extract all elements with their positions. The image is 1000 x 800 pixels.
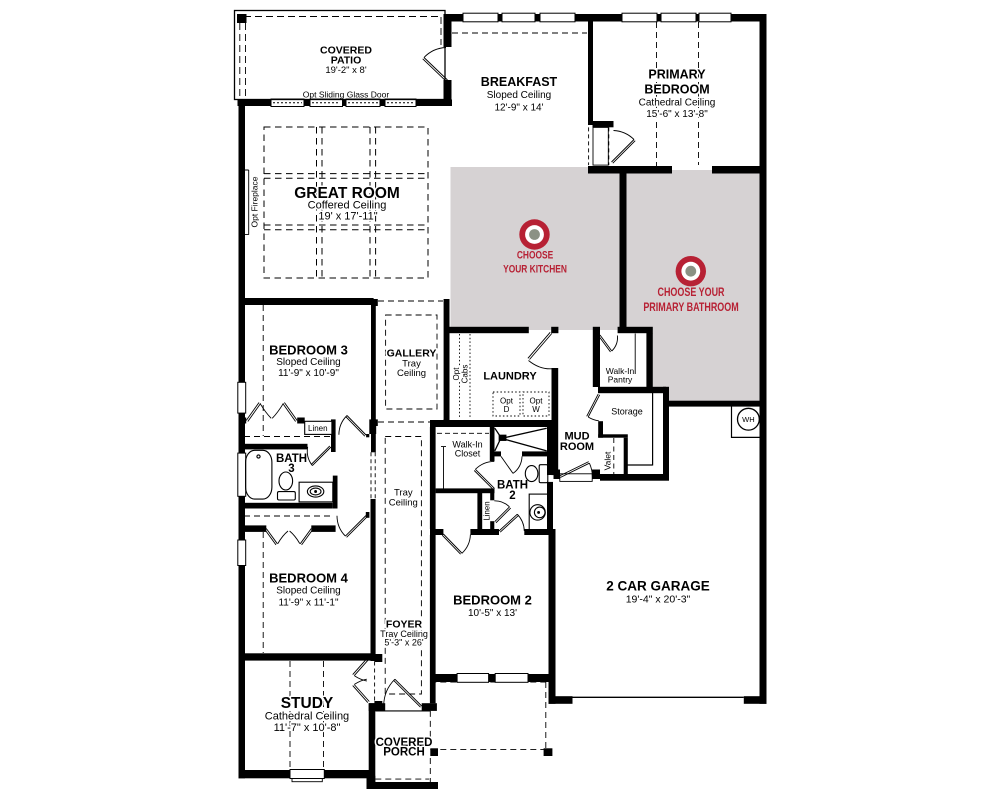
svg-text:Sloped Ceiling: Sloped Ceiling (276, 586, 341, 597)
svg-text:Valet: Valet (603, 451, 613, 470)
svg-text:19'-4" x 20'-3": 19'-4" x 20'-3" (626, 594, 691, 606)
svg-text:Sloped Ceiling: Sloped Ceiling (487, 90, 552, 101)
svg-text:YOUR KITCHEN: YOUR KITCHEN (503, 264, 567, 277)
svg-text:Cathedral Ceiling: Cathedral Ceiling (265, 711, 349, 723)
svg-text:Sloped Ceiling: Sloped Ceiling (276, 357, 341, 368)
svg-text:STUDY: STUDY (281, 695, 334, 712)
svg-text:BEDROOM: BEDROOM (644, 83, 709, 97)
svg-text:Opt Sliding Glass Door: Opt Sliding Glass Door (303, 90, 390, 100)
svg-text:PORCH: PORCH (383, 747, 425, 759)
svg-text:BEDROOM 3: BEDROOM 3 (269, 343, 348, 358)
svg-text:Cabs: Cabs (461, 365, 470, 384)
svg-text:19'-2" x 8': 19'-2" x 8' (325, 65, 367, 76)
svg-text:Linen: Linen (482, 501, 491, 520)
svg-text:Storage: Storage (611, 407, 643, 417)
svg-text:11'-9" x 11'-1": 11'-9" x 11'-1" (278, 598, 338, 609)
svg-text:Closet: Closet (455, 449, 481, 459)
svg-text:LAUNDRY: LAUNDRY (483, 371, 537, 383)
svg-text:2: 2 (509, 490, 515, 502)
svg-text:15'-6" x 13'-8": 15'-6" x 13'-8" (646, 109, 708, 120)
svg-text:Cathedral Ceiling: Cathedral Ceiling (639, 98, 716, 109)
svg-text:BREAKFAST: BREAKFAST (481, 75, 558, 89)
svg-text:BEDROOM 4: BEDROOM 4 (269, 571, 349, 586)
svg-text:PRIMARY: PRIMARY (648, 68, 706, 82)
svg-text:PRIMARY BATHROOM: PRIMARY BATHROOM (643, 302, 738, 314)
svg-text:11'-9" x 10'-9": 11'-9" x 10'-9" (278, 368, 339, 379)
svg-text:D: D (504, 405, 510, 414)
svg-text:3: 3 (288, 463, 294, 475)
svg-text:CHOOSE: CHOOSE (517, 250, 554, 263)
svg-text:BEDROOM 2: BEDROOM 2 (453, 593, 532, 608)
svg-text:11'-7" x 10'-8": 11'-7" x 10'-8" (274, 722, 341, 734)
svg-text:Ceiling: Ceiling (389, 498, 418, 509)
svg-text:2 CAR GARAGE: 2 CAR GARAGE (606, 579, 710, 594)
svg-text:10'-5" x 13': 10'-5" x 13' (468, 608, 517, 619)
svg-text:5'-3" x 26': 5'-3" x 26' (384, 638, 423, 648)
svg-text:Ceiling: Ceiling (397, 368, 426, 379)
svg-text:12'-9" x 14': 12'-9" x 14' (494, 103, 543, 114)
svg-text:Linen: Linen (308, 424, 328, 433)
svg-text:ROOM: ROOM (560, 441, 594, 453)
svg-text:19' x 17'-11": 19' x 17'-11" (318, 211, 377, 223)
svg-text:CHOOSE YOUR: CHOOSE YOUR (657, 287, 725, 299)
svg-text:Opt Fireplace: Opt Fireplace (250, 176, 260, 227)
svg-text:Pantry: Pantry (608, 375, 633, 385)
svg-text:W: W (532, 405, 540, 414)
svg-text:WH: WH (742, 415, 755, 424)
